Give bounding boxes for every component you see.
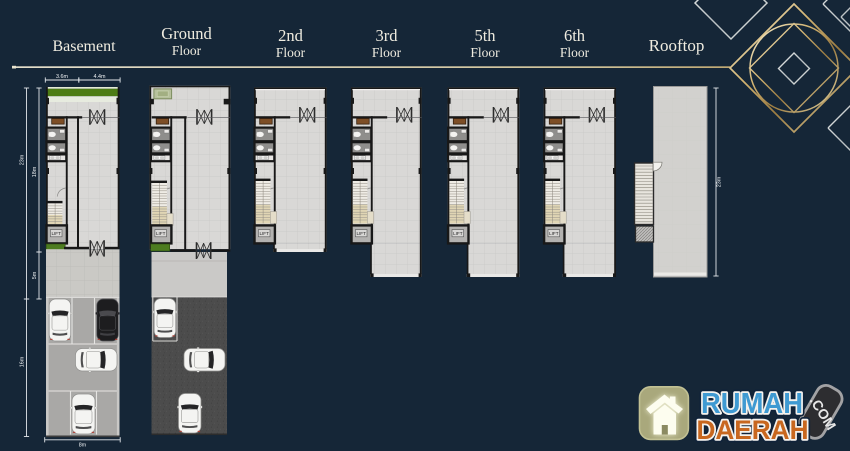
svg-text:LIFT: LIFT xyxy=(356,231,366,236)
svg-text:Ground: Ground xyxy=(161,24,212,43)
svg-text:5m: 5m xyxy=(32,271,38,279)
svg-text:6th: 6th xyxy=(564,26,586,45)
svg-text:Floor: Floor xyxy=(372,45,402,60)
svg-text:4.4m: 4.4m xyxy=(93,74,105,80)
svg-text:Basement: Basement xyxy=(52,38,116,55)
svg-text:LIFT: LIFT xyxy=(453,231,463,236)
svg-text:DAERAH: DAERAH xyxy=(697,415,809,445)
svg-text:Floor: Floor xyxy=(470,45,500,60)
svg-text:23m: 23m xyxy=(19,154,25,165)
svg-text:LIFT: LIFT xyxy=(156,231,166,236)
svg-text:3rd: 3rd xyxy=(376,26,399,45)
svg-text:16m: 16m xyxy=(19,356,25,367)
svg-text:LIFT: LIFT xyxy=(51,231,61,236)
svg-text:23m: 23m xyxy=(717,176,723,187)
svg-text:Rooftop: Rooftop xyxy=(649,36,705,55)
svg-text:LIFT: LIFT xyxy=(549,231,559,236)
svg-text:Floor: Floor xyxy=(560,45,590,60)
svg-text:2nd: 2nd xyxy=(278,26,304,45)
svg-text:LIFT: LIFT xyxy=(259,231,269,236)
svg-text:8m: 8m xyxy=(79,443,87,449)
svg-text:5th: 5th xyxy=(474,26,496,45)
svg-text:Floor: Floor xyxy=(172,43,202,58)
svg-text:Floor: Floor xyxy=(276,45,306,60)
svg-text:18m: 18m xyxy=(32,166,38,177)
svg-text:3.6m: 3.6m xyxy=(56,74,68,80)
